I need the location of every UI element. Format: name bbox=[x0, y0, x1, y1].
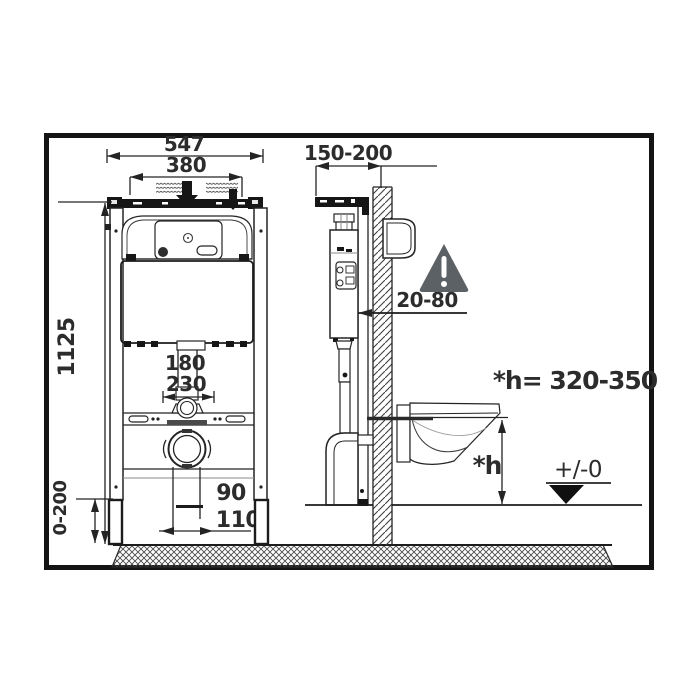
dim-mounting-width-label: 380 bbox=[166, 153, 206, 177]
dim-frame-depth-label: 150-200 bbox=[304, 141, 392, 165]
floor-datum: +/-0 bbox=[546, 457, 611, 504]
frame-rail-left bbox=[110, 208, 123, 500]
adjustable-leg-right bbox=[255, 500, 268, 544]
panel-plug bbox=[158, 247, 168, 257]
dim-outlet-offset-label: 90 bbox=[216, 481, 246, 506]
frame-rail-right bbox=[254, 208, 267, 500]
diagram-canvas: 547 380 bbox=[0, 0, 700, 700]
dim-frame-depth: 150-200 bbox=[304, 141, 437, 196]
dim-frame-height-label: 1125 bbox=[55, 317, 80, 376]
floor-hatch-band bbox=[112, 545, 613, 567]
dim-seat-height-symbol: *h bbox=[473, 451, 502, 480]
wall-bracket bbox=[383, 219, 415, 258]
water-supply-connection bbox=[177, 398, 197, 418]
dim-supply-label: 230 bbox=[166, 372, 206, 396]
drain-outlet bbox=[164, 429, 211, 468]
front-view: 547 380 bbox=[50, 132, 268, 544]
dim-leg-adjustment-label: 0-200 bbox=[50, 480, 71, 535]
cistern-tank bbox=[121, 261, 253, 350]
seat-height-formula: *h= 320-350 bbox=[493, 366, 658, 395]
datum-triangle bbox=[549, 485, 584, 504]
side-view: 150-200 20-80 *h bbox=[304, 141, 658, 506]
panel-slot bbox=[197, 246, 217, 255]
cistern-access-panel bbox=[122, 216, 252, 261]
side-rail-fill bbox=[357, 207, 369, 505]
side-cistern bbox=[330, 214, 358, 433]
warning-icon bbox=[420, 244, 468, 292]
floor-datum-label: +/-0 bbox=[554, 457, 602, 483]
installation-diagram: 547 380 bbox=[0, 0, 700, 700]
dim-outlet-diameter-label: 110 bbox=[216, 508, 261, 533]
adjustable-leg-left bbox=[109, 500, 122, 544]
